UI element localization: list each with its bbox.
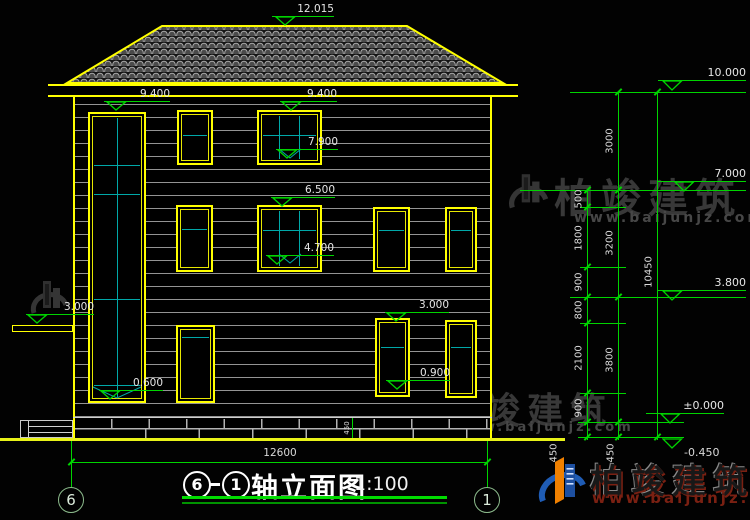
elev-symbol-minus0450: -0.450	[684, 446, 719, 459]
dim-label-2100: 2100	[574, 345, 585, 370]
watermark-bottom-right-logo: 柏竣建筑 www.baijunjz.com	[536, 448, 588, 514]
elev-label: 9.400	[307, 88, 337, 100]
elev-label: 12.015	[297, 3, 334, 15]
grid-number: 6	[66, 491, 76, 509]
elev-triangle-icon	[660, 413, 681, 424]
elev-symbol-7000: 7.000	[658, 167, 746, 182]
brand-logo-color-icon	[536, 448, 588, 510]
watermark-url-text: www.baijunjz.com	[574, 210, 750, 226]
window-transom	[451, 347, 471, 348]
dim-label-800: 800	[574, 300, 585, 319]
elev-marker-0900: 0.900	[386, 367, 450, 381]
window-transom	[183, 135, 207, 136]
window-transom	[381, 347, 404, 348]
step-riser-line	[28, 421, 29, 437]
window-transom	[94, 165, 140, 166]
step-tread-line	[28, 426, 72, 427]
elev-marker-9400-left: 9.400	[104, 88, 170, 102]
elev-label: ±0.000	[683, 399, 724, 412]
elev-label: 3.000	[419, 299, 449, 311]
window-2f-right-b	[445, 207, 477, 272]
elev-triangle-icon	[106, 101, 127, 111]
elev-triangle-icon	[386, 312, 407, 322]
elev-marker-ridge: 12.015	[272, 3, 334, 17]
dim-label-total: 10450	[644, 256, 655, 288]
elev-triangle-icon	[277, 149, 298, 159]
grid-bubble-1: 1	[474, 487, 500, 513]
window-transom	[379, 230, 404, 231]
stone-base	[73, 418, 492, 438]
level-line-3800	[570, 297, 746, 298]
title-axis-circle-end: 1	[222, 471, 250, 499]
dim-label-450: 450	[549, 443, 560, 462]
title-dash	[210, 483, 220, 486]
step-tread-line	[28, 432, 72, 433]
elev-label: 6.500	[305, 184, 335, 196]
elev-marker-4700: 4.700	[266, 242, 334, 256]
elev-marker-3000-right: 3.000	[385, 299, 449, 313]
dim-chain-inner	[587, 190, 588, 440]
elev-label: 7.900	[308, 136, 338, 148]
grid-bubble-6: 6	[58, 487, 84, 513]
grid-number: 1	[482, 491, 492, 509]
window-3f-left	[177, 110, 213, 165]
title-underline-thin	[182, 502, 447, 504]
window-frame-inner	[449, 211, 473, 268]
window-transom	[94, 194, 140, 195]
elev-triangle-icon	[662, 290, 683, 301]
window-2f-right-a	[373, 207, 410, 272]
dim-chain-outer	[618, 92, 619, 440]
title-axis-number: 1	[230, 475, 241, 494]
window-2f-left	[176, 205, 213, 272]
elev-marker-7900: 7.900	[276, 136, 338, 150]
window-staircase-tall	[88, 112, 146, 403]
title-axis-circle-start: 6	[183, 471, 211, 499]
elev-triangle-icon	[275, 16, 296, 26]
level-line-7000	[520, 190, 746, 191]
window-frame-inner	[377, 211, 406, 268]
roof-face	[67, 26, 503, 83]
elev-triangle-icon	[100, 390, 121, 400]
drawing-title: 轴立面图	[251, 466, 367, 505]
elev-symbol-10000: 10.000	[658, 66, 746, 81]
axis-extension-left	[71, 441, 72, 487]
elev-symbol-3800: 3.800	[658, 276, 746, 291]
dim-label-450b: 450	[606, 443, 617, 462]
elev-label: 7.000	[715, 167, 747, 180]
elev-label: 3.000	[64, 301, 94, 313]
elev-label: 10.000	[708, 66, 747, 79]
dim-label-3000: 3000	[605, 128, 616, 153]
dim-label-900: 900	[574, 272, 585, 291]
elev-label: 3.800	[715, 276, 747, 289]
window-transom	[451, 230, 471, 231]
brand-logo-icon	[504, 169, 552, 217]
elev-marker-6500: 6.500	[271, 184, 335, 198]
elev-label: 9.400	[140, 88, 170, 100]
elevation-drawing-canvas: 柏竣建筑 www.baijunjz.com 柏竣建筑 www.baijunjz.…	[0, 0, 750, 520]
elev-marker-0600: 0.600	[99, 377, 163, 391]
window-transom	[263, 230, 316, 231]
window-frame-inner	[449, 324, 473, 394]
dim-label-3800: 3800	[605, 347, 616, 372]
title-underline-thick	[182, 496, 447, 499]
base-dim-label: 450	[343, 421, 351, 434]
window-frame-inner	[181, 114, 209, 161]
base-dim-line	[352, 418, 353, 438]
dim-label-500: 500	[574, 189, 585, 208]
window-frame-inner	[180, 209, 209, 268]
elev-triangle-icon	[281, 101, 302, 111]
window-transom	[182, 229, 207, 230]
elev-label: 0.600	[133, 377, 163, 389]
elev-triangle-icon	[272, 197, 293, 207]
elev-triangle-icon	[267, 255, 288, 265]
dim-label-900b: 900	[574, 398, 585, 417]
title-axis-number: 6	[191, 475, 202, 494]
elev-label: 0.900	[420, 367, 450, 379]
ground-line	[0, 438, 565, 441]
elev-triangle-icon	[662, 80, 683, 91]
axis-extension-right	[487, 441, 488, 487]
elev-symbol-0000: ±0.000	[646, 399, 724, 414]
overall-dim-line	[71, 462, 487, 463]
window-frame-inner	[180, 329, 211, 399]
window-1f-left	[176, 325, 215, 403]
dim-label-3200: 3200	[605, 230, 616, 255]
elev-marker-9400-right: 9.400	[280, 88, 337, 102]
overall-width-label: 12600	[250, 447, 310, 459]
elev-triangle-icon	[662, 438, 683, 449]
side-canopy	[12, 325, 73, 332]
entry-steps	[20, 420, 73, 438]
elev-triangle-icon	[674, 181, 695, 192]
elev-label: 4.700	[304, 242, 334, 254]
window-transom	[182, 337, 209, 338]
elev-marker-3000-left: 3.000	[26, 301, 94, 315]
window-1f-right-b	[445, 320, 477, 398]
elev-triangle-icon	[387, 380, 408, 390]
watermark-url-text: www.baijunjz.com	[592, 489, 750, 507]
window-transom	[94, 299, 140, 300]
elev-triangle-icon	[27, 314, 48, 324]
window-mullion	[117, 118, 118, 397]
stone-base-top-line	[73, 417, 492, 418]
drawing-scale: 1:100	[354, 473, 409, 495]
dim-label-1800: 1800	[574, 225, 585, 250]
dim-chain-total	[657, 92, 658, 440]
